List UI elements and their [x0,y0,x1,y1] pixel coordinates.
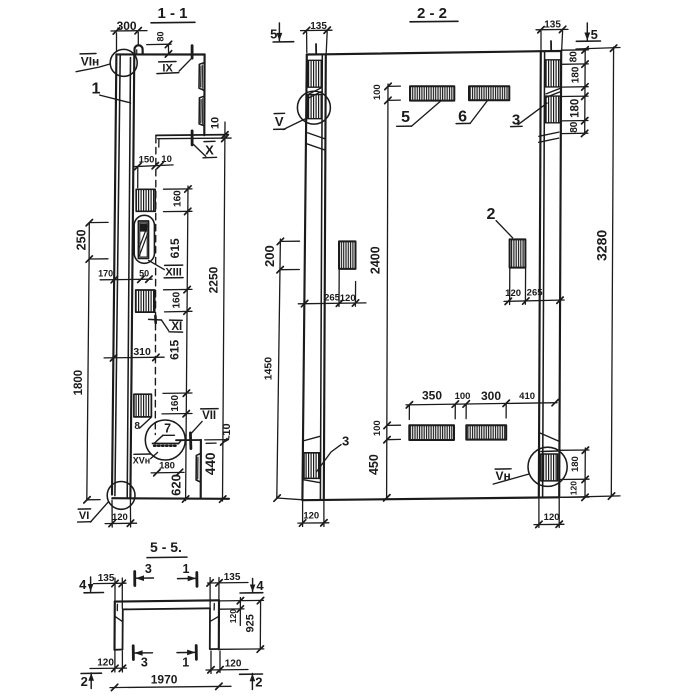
svg-text:10: 10 [221,423,233,435]
svg-text:10: 10 [210,117,222,129]
svg-text:50: 50 [139,268,149,278]
svg-text:440: 440 [203,453,218,476]
svg-text:135: 135 [98,573,115,584]
svg-text:VII: VII [202,410,216,422]
svg-text:VI: VI [79,510,89,522]
svg-text:160: 160 [172,291,183,308]
svg-text:5: 5 [270,26,277,41]
svg-text:265: 265 [527,288,544,299]
svg-text:2: 2 [487,206,496,223]
svg-text:120: 120 [225,659,242,670]
svg-text:180: 180 [159,461,175,472]
svg-text:2250: 2250 [206,266,220,293]
svg-text:VIн: VIн [81,55,100,69]
svg-text:80: 80 [155,31,165,41]
svg-text:410: 410 [519,391,535,402]
svg-text:150: 150 [139,155,155,166]
svg-text:180: 180 [571,66,582,83]
svg-text:5 - 5.: 5 - 5. [150,539,182,555]
svg-text:2: 2 [81,674,88,689]
svg-text:1970: 1970 [151,673,178,687]
svg-text:2: 2 [255,675,262,690]
svg-text:100: 100 [372,420,383,436]
svg-text:1: 1 [183,562,190,576]
svg-text:925: 925 [245,614,257,632]
svg-text:300: 300 [481,389,501,403]
svg-text:450: 450 [367,454,381,475]
svg-text:615: 615 [168,238,182,258]
svg-text:120: 120 [97,658,114,669]
svg-text:180: 180 [570,99,582,118]
svg-text:250: 250 [74,229,88,250]
svg-text:100: 100 [372,84,383,100]
svg-text:4: 4 [79,577,87,592]
svg-text:620: 620 [169,474,184,496]
svg-text:4: 4 [256,578,264,593]
svg-text:XIII: XIII [165,267,182,279]
svg-text:200: 200 [262,245,277,267]
svg-text:615: 615 [168,339,182,359]
svg-text:3280: 3280 [593,230,609,261]
svg-text:135: 135 [224,572,241,583]
svg-text:XVн: XVн [133,456,150,466]
svg-text:8: 8 [134,421,140,432]
svg-text:100: 100 [455,391,471,402]
svg-text:7: 7 [164,422,171,436]
svg-text:2400: 2400 [369,246,383,274]
svg-text:120: 120 [340,293,356,304]
svg-text:160: 160 [170,395,181,412]
svg-text:135: 135 [310,21,327,32]
svg-text:120: 120 [544,512,560,523]
svg-text:310: 310 [133,346,151,358]
svg-text:3: 3 [145,562,152,576]
svg-text:170: 170 [98,268,113,278]
svg-text:135: 135 [544,20,561,31]
svg-text:120: 120 [569,481,579,495]
svg-text:300: 300 [117,19,137,33]
svg-text:2 - 2: 2 - 2 [417,5,447,22]
svg-text:180: 180 [570,456,581,472]
svg-text:120: 120 [112,512,128,523]
svg-text:80: 80 [569,121,580,133]
svg-text:1: 1 [182,655,189,669]
svg-text:265: 265 [324,292,341,303]
svg-text:X: X [205,142,214,157]
svg-text:120: 120 [505,288,521,299]
svg-text:1800: 1800 [73,370,85,396]
svg-text:350: 350 [422,389,442,403]
svg-text:120: 120 [228,609,238,623]
svg-text:1 - 1: 1 - 1 [157,5,187,22]
svg-text:5: 5 [591,27,598,42]
svg-text:80: 80 [569,51,580,63]
svg-text:120: 120 [303,510,319,521]
svg-text:10: 10 [161,154,172,165]
svg-text:1450: 1450 [262,357,274,381]
svg-text:5: 5 [401,109,410,126]
svg-text:3: 3 [141,656,148,670]
svg-text:3: 3 [342,433,349,448]
svg-text:160: 160 [172,190,183,207]
svg-text:V: V [275,114,284,129]
